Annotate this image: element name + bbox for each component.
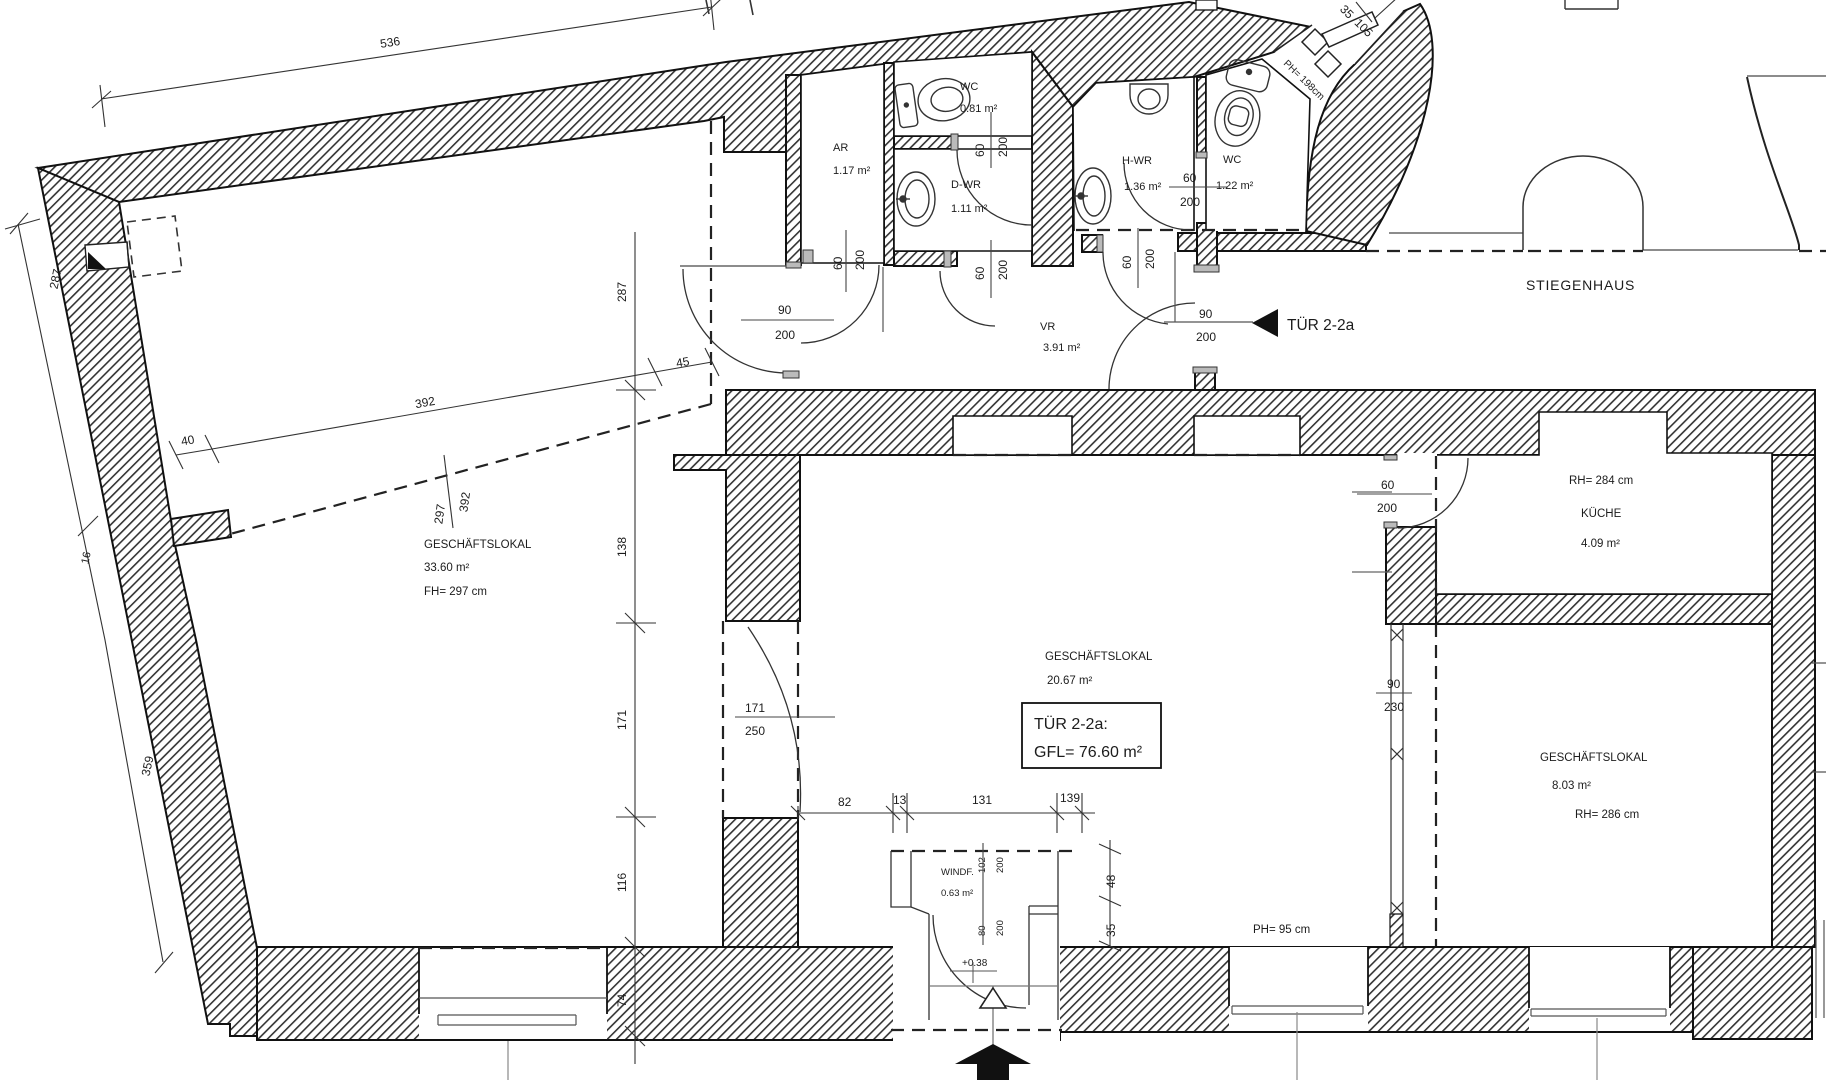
svg-text:WC: WC <box>1223 154 1241 166</box>
svg-text:PH= 95 cm: PH= 95 cm <box>1253 924 1310 936</box>
svg-text:KÜCHE: KÜCHE <box>1581 508 1622 520</box>
svg-text:3.91 m²: 3.91 m² <box>1043 342 1081 354</box>
svg-text:60: 60 <box>1381 478 1395 492</box>
svg-text:60: 60 <box>1183 171 1197 185</box>
svg-text:82: 82 <box>838 795 852 809</box>
svg-text:90: 90 <box>1387 677 1401 691</box>
svg-text:200: 200 <box>1180 195 1200 209</box>
svg-text:33.60 m²: 33.60 m² <box>424 562 470 574</box>
svg-text:+0.38: +0.38 <box>962 958 988 969</box>
svg-text:60: 60 <box>1120 255 1134 269</box>
svg-text:200: 200 <box>1196 330 1216 344</box>
svg-text:20.67 m²: 20.67 m² <box>1047 675 1093 687</box>
svg-text:171: 171 <box>615 710 629 730</box>
svg-text:1.17 m²: 1.17 m² <box>833 165 871 177</box>
svg-text:200: 200 <box>853 250 867 270</box>
svg-text:16: 16 <box>79 551 93 565</box>
svg-text:200: 200 <box>775 328 795 342</box>
svg-text:48: 48 <box>1104 874 1118 888</box>
svg-text:8.03 m²: 8.03 m² <box>1552 780 1591 792</box>
svg-text:139: 139 <box>1060 791 1080 805</box>
svg-text:74: 74 <box>615 993 629 1007</box>
svg-text:WC: WC <box>960 81 978 93</box>
svg-text:RH= 284 cm: RH= 284 cm <box>1569 475 1633 487</box>
svg-text:297: 297 <box>431 503 448 525</box>
svg-text:0.81 m²: 0.81 m² <box>960 103 998 115</box>
svg-text:45: 45 <box>675 354 691 370</box>
svg-text:WINDF.: WINDF. <box>941 867 974 878</box>
svg-text:200: 200 <box>996 260 1010 280</box>
svg-text:GESCHÄFTSLOKAL: GESCHÄFTSLOKAL <box>1045 651 1153 663</box>
svg-text:FH= 297 cm: FH= 297 cm <box>424 586 487 598</box>
svg-text:131: 131 <box>972 793 992 807</box>
svg-text:H-WR: H-WR <box>1122 155 1152 167</box>
svg-text:171: 171 <box>745 701 765 715</box>
svg-text:GFL= 76.60 m²: GFL= 76.60 m² <box>1034 744 1143 761</box>
svg-text:90: 90 <box>778 303 792 317</box>
svg-text:1.22 m²: 1.22 m² <box>1216 180 1254 192</box>
svg-text:116: 116 <box>615 873 629 892</box>
svg-text:200: 200 <box>995 920 1006 936</box>
svg-text:250: 250 <box>745 724 765 738</box>
svg-text:200: 200 <box>996 137 1010 157</box>
svg-text:35: 35 <box>1104 923 1118 937</box>
svg-text:AR: AR <box>833 142 848 154</box>
svg-text:GESCHÄFTSLOKAL: GESCHÄFTSLOKAL <box>1540 752 1648 764</box>
svg-text:STIEGENHAUS: STIEGENHAUS <box>1526 277 1635 293</box>
svg-text:90: 90 <box>1199 307 1213 321</box>
svg-text:1.36 m²: 1.36 m² <box>1124 181 1162 193</box>
svg-text:40: 40 <box>180 432 196 448</box>
svg-text:D-WR: D-WR <box>951 179 981 191</box>
svg-text:200: 200 <box>1377 501 1397 515</box>
svg-text:TÜR 2-2a:: TÜR 2-2a: <box>1034 715 1108 733</box>
svg-text:TÜR 2-2a: TÜR 2-2a <box>1287 316 1355 334</box>
svg-text:200: 200 <box>1143 249 1157 269</box>
svg-text:GESCHÄFTSLOKAL: GESCHÄFTSLOKAL <box>424 539 532 551</box>
svg-text:RH= 286 cm: RH= 286 cm <box>1575 809 1639 821</box>
svg-text:60: 60 <box>973 266 987 280</box>
svg-text:200: 200 <box>995 857 1006 873</box>
svg-text:138: 138 <box>615 537 629 557</box>
svg-text:230: 230 <box>1384 700 1404 714</box>
svg-text:60: 60 <box>973 143 987 157</box>
svg-text:60: 60 <box>831 256 845 270</box>
svg-text:1.11 m²: 1.11 m² <box>951 203 988 215</box>
svg-text:287: 287 <box>615 282 629 302</box>
svg-text:VR: VR <box>1040 321 1055 333</box>
svg-text:392: 392 <box>456 491 473 513</box>
svg-text:0.63 m²: 0.63 m² <box>941 888 973 899</box>
svg-text:13: 13 <box>893 793 907 807</box>
svg-text:4.09 m²: 4.09 m² <box>1581 538 1620 550</box>
